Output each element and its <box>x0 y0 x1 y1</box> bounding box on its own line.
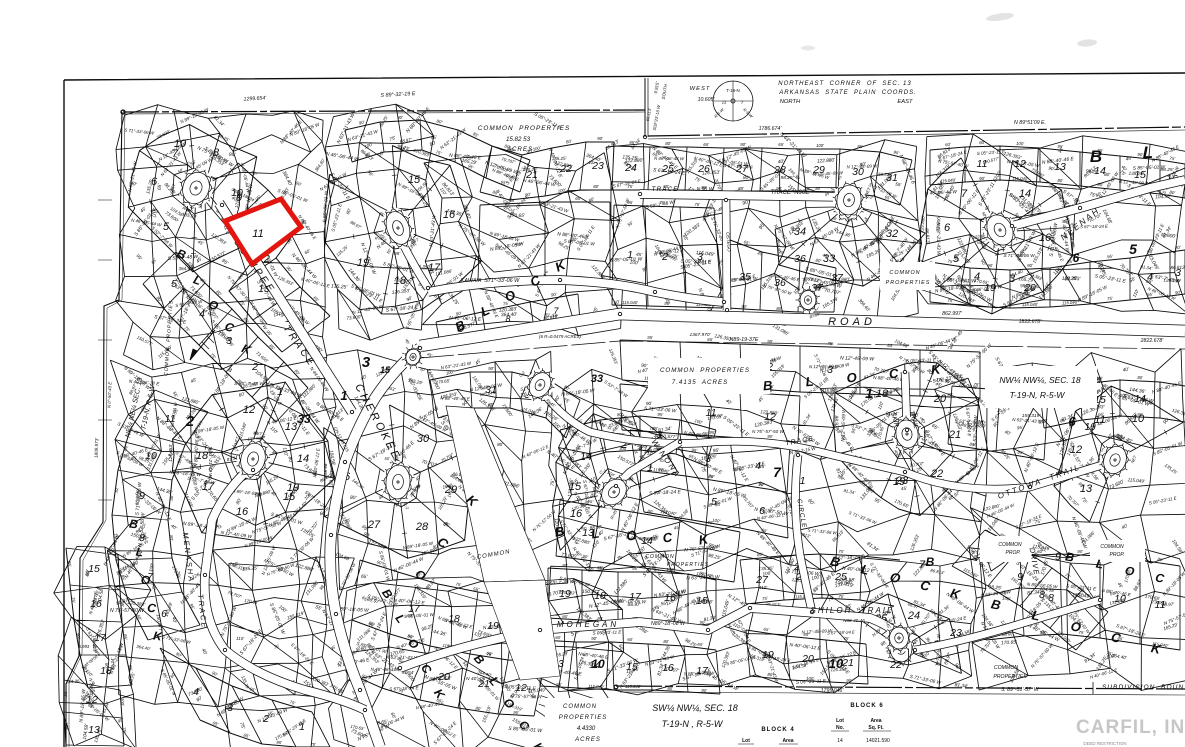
svg-text:N 63°-21'-43 W: N 63°-21'-43 W <box>686 574 720 581</box>
svg-text:65': 65' <box>562 614 568 619</box>
svg-text:60': 60' <box>555 635 561 640</box>
svg-text:65': 65' <box>703 142 709 147</box>
svg-text:100': 100' <box>1002 596 1011 602</box>
svg-text:80': 80' <box>708 474 714 480</box>
svg-text:B: B <box>762 378 773 394</box>
svg-text:80': 80' <box>767 672 773 678</box>
svg-text:15: 15 <box>380 365 391 375</box>
svg-text:85': 85' <box>562 563 568 568</box>
svg-text:80': 80' <box>617 412 623 418</box>
svg-text:90': 90' <box>1027 263 1033 268</box>
svg-text:6: 6 <box>944 222 951 234</box>
svg-text:1809.973': 1809.973' <box>94 438 100 458</box>
svg-text:10: 10 <box>829 656 844 671</box>
svg-text:PROPERTIES: PROPERTIES <box>667 562 709 568</box>
svg-text:95': 95' <box>1098 412 1104 418</box>
svg-text:TRACE N90E: TRACE N90E <box>771 190 811 196</box>
svg-text:N 89°-18'-05 W: N 89°-18'-05 W <box>614 599 647 605</box>
svg-text:80': 80' <box>1137 375 1143 380</box>
svg-text:80': 80' <box>593 184 599 189</box>
svg-text:27: 27 <box>367 519 381 531</box>
svg-text:3: 3 <box>362 354 371 371</box>
svg-text:20: 20 <box>933 393 947 405</box>
svg-text:PROP.: PROP. <box>1006 550 1021 556</box>
svg-text:1367.970': 1367.970' <box>690 332 712 338</box>
svg-text:80': 80' <box>663 639 669 644</box>
svg-text:DEED RESTRICTION: DEED RESTRICTION <box>1083 741 1126 746</box>
svg-text:S 05°-23'-11 E: S 05°-23'-11 E <box>592 629 622 635</box>
svg-text:1: 1 <box>340 388 347 403</box>
svg-text:65': 65' <box>587 499 593 505</box>
svg-text:N89-19-37E: N89-19-37E <box>729 337 758 343</box>
svg-text:75': 75' <box>838 594 844 599</box>
svg-text:795.778': 795.778' <box>93 591 99 608</box>
svg-text:115.040': 115.040' <box>622 300 638 306</box>
svg-text:126.353': 126.353' <box>702 169 722 176</box>
svg-text:7.4135 ACRES: 7.4135 ACRES <box>672 379 728 386</box>
svg-text:98.25': 98.25' <box>1020 283 1032 289</box>
svg-text:16: 16 <box>443 209 456 221</box>
svg-text:80': 80' <box>815 186 821 191</box>
svg-text:95': 95' <box>1137 412 1143 417</box>
svg-text:COMMON: COMMON <box>563 704 597 710</box>
svg-text:NET: NET <box>254 431 263 437</box>
svg-text:N 12°-45'-09 W: N 12°-45'-09 W <box>840 408 847 442</box>
svg-text:95': 95' <box>1077 549 1083 554</box>
svg-text:80': 80' <box>1057 178 1063 184</box>
svg-text:NORTH: NORTH <box>780 99 801 105</box>
svg-text:16: 16 <box>1084 422 1096 433</box>
svg-text:COMMON: COMMON <box>994 665 1018 671</box>
svg-text:PROP.: PROP. <box>1110 552 1125 558</box>
svg-text:55': 55' <box>895 182 902 188</box>
svg-text:NORTHEAST CORNER OF SEC. 13: NORTHEAST CORNER OF SEC. 13 <box>778 81 911 87</box>
svg-text:80': 80' <box>665 141 671 146</box>
svg-text:4.4330: 4.4330 <box>577 726 596 732</box>
svg-text:75': 75' <box>1107 296 1113 302</box>
svg-text:BLOCK 4: BLOCK 4 <box>761 727 794 733</box>
svg-text:N88-40-46: N88-40-46 <box>843 618 865 623</box>
svg-text:COMMON: COMMON <box>645 554 674 560</box>
svg-text:1: 1 <box>865 385 873 401</box>
svg-text:O: O <box>846 370 857 386</box>
svg-text:22: 22 <box>889 659 902 671</box>
svg-text:B: B <box>926 555 935 569</box>
svg-text:COMMON PROPERTIES: COMMON PROPERTIES <box>478 125 570 132</box>
svg-text:28: 28 <box>415 521 429 533</box>
svg-text:30: 30 <box>417 433 430 445</box>
svg-text:Sq. Ft.: Sq. Ft. <box>868 725 884 731</box>
svg-text:ROAD: ROAD <box>828 316 876 328</box>
svg-text:14021.590: 14021.590 <box>866 738 890 744</box>
svg-text:75': 75' <box>1106 651 1113 657</box>
svg-text:3. 89°-51'-57 W: 3. 89°-51'-57 W <box>1001 687 1039 693</box>
svg-text:PROPERTIES: PROPERTIES <box>559 715 608 721</box>
svg-text:1299.654': 1299.654' <box>243 95 267 102</box>
svg-text:PROPERTIES: PROPERTIES <box>886 280 931 286</box>
svg-text:COMMON: COMMON <box>1100 544 1124 550</box>
svg-text:12: 12 <box>243 404 255 416</box>
svg-text:10.605': 10.605' <box>698 97 716 103</box>
svg-text:B: B <box>1090 147 1102 166</box>
svg-text:4: 4 <box>199 308 205 320</box>
svg-text:ARKANSAS STATE PLAIN COORDS: ARKANSAS STATE PLAIN COORDS. <box>778 90 916 96</box>
svg-text:1822.678': 1822.678' <box>1019 319 1043 325</box>
svg-text:10: 10 <box>591 657 605 671</box>
svg-text:1786.674': 1786.674' <box>759 126 783 132</box>
svg-text:45': 45' <box>636 252 643 258</box>
svg-text:6: 6 <box>1068 414 1076 429</box>
svg-text:EAST: EAST <box>897 99 913 105</box>
svg-text:Lot: Lot <box>836 718 844 724</box>
svg-text:11: 11 <box>252 228 263 240</box>
svg-text:75': 75' <box>827 341 833 346</box>
svg-text:T-19-N , R-5-W: T-19-N , R-5-W <box>662 719 724 729</box>
svg-text:14: 14 <box>297 453 309 465</box>
svg-text:80': 80' <box>1169 190 1175 196</box>
svg-text:1795.046': 1795.046' <box>821 688 845 694</box>
svg-text:T-19-N, R-5-W: T-19-N, R-5-W <box>1010 390 1066 400</box>
svg-text:135.25': 135.25' <box>1129 171 1144 177</box>
svg-text:SW¼ NW¼, SEC. 18: SW¼ NW¼, SEC. 18 <box>652 703 738 713</box>
svg-text:65': 65' <box>697 642 703 648</box>
svg-text:95': 95' <box>664 301 670 306</box>
svg-text:5: 5 <box>1129 241 1137 257</box>
svg-text:85': 85' <box>887 390 893 395</box>
svg-text:No.: No. <box>836 725 845 731</box>
svg-text:33: 33 <box>297 412 311 426</box>
svg-text:88.97': 88.97' <box>1162 602 1175 608</box>
svg-text:2822.678': 2822.678' <box>1140 338 1165 344</box>
svg-text:75': 75' <box>838 549 844 554</box>
svg-text:60': 60' <box>627 637 633 642</box>
svg-text:110': 110' <box>236 636 245 642</box>
svg-text:7: 7 <box>919 559 926 571</box>
svg-text:(6 R=0.0479 ACRES): (6 R=0.0479 ACRES) <box>539 334 581 339</box>
svg-text:Area: Area <box>782 738 793 744</box>
svg-text:N 12°-45'-09 W: N 12°-45'-09 W <box>840 355 876 362</box>
svg-text:80': 80' <box>715 502 721 508</box>
svg-text:6.993: 6.993 <box>79 644 90 649</box>
svg-text:2: 2 <box>185 413 195 430</box>
svg-text:L: L <box>805 374 814 390</box>
svg-text:95': 95' <box>276 740 282 745</box>
svg-text:ACRES: ACRES <box>506 146 533 153</box>
svg-text:90': 90' <box>591 636 597 641</box>
svg-text:122.880': 122.880' <box>625 158 645 165</box>
svg-text:CARFIL, INC: CARFIL, INC <box>1076 717 1185 738</box>
svg-text:85': 85' <box>738 186 744 191</box>
svg-text:24: 24 <box>907 610 920 622</box>
svg-text:65': 65' <box>763 627 769 633</box>
svg-text:90': 90' <box>551 292 557 298</box>
svg-text:80': 80' <box>497 442 503 447</box>
svg-text:MOHEGAN: MOHEGAN <box>557 620 619 629</box>
svg-text:85': 85' <box>969 442 975 448</box>
svg-text:16: 16 <box>570 508 583 520</box>
svg-text:WEST: WEST <box>690 86 711 92</box>
svg-text:33: 33 <box>591 373 603 385</box>
svg-text:90': 90' <box>658 467 664 473</box>
svg-text:90': 90' <box>767 434 773 439</box>
svg-text:N 89°51'09 E.: N 89°51'09 E. <box>1014 120 1046 126</box>
svg-text:75': 75' <box>114 487 120 493</box>
svg-text:COMMON PROPERTIES: COMMON PROPERTIES <box>660 367 750 374</box>
svg-text:90': 90' <box>979 176 985 181</box>
svg-text:60': 60' <box>945 142 951 147</box>
svg-text:862.997': 862.997' <box>942 311 963 317</box>
svg-text:65': 65' <box>778 142 784 147</box>
svg-text:SHILOH TRAIL: SHILOH TRAIL <box>811 606 894 615</box>
svg-text:80': 80' <box>979 140 985 145</box>
svg-text:75': 75' <box>694 202 700 207</box>
svg-text:100': 100' <box>816 143 824 148</box>
svg-text:N89°-18'-08 W: N89°-18'-08 W <box>651 621 686 627</box>
svg-text:14: 14 <box>837 738 843 744</box>
svg-text:75': 75' <box>1169 156 1175 162</box>
svg-text:KAWAIA S71°-33'-06 W: KAWAIA S71°-33'-06 W <box>461 278 520 284</box>
svg-text:86.813': 86.813' <box>1170 265 1185 270</box>
svg-text:75': 75' <box>659 200 665 205</box>
svg-text:60': 60' <box>566 139 573 145</box>
svg-text:95': 95' <box>1017 425 1023 431</box>
svg-text:15.82 53: 15.82 53 <box>506 136 531 143</box>
svg-text:7: 7 <box>773 464 782 480</box>
svg-text:75': 75' <box>762 596 768 602</box>
svg-text:95': 95' <box>1107 254 1113 260</box>
svg-text:65': 65' <box>887 343 893 348</box>
svg-text:NW¼ NW¼, SEC. 18: NW¼ NW¼, SEC. 18 <box>999 375 1081 385</box>
svg-text:COMMON: COMMON <box>889 270 920 276</box>
svg-text:90': 90' <box>646 401 652 406</box>
svg-text:50': 50' <box>420 367 426 373</box>
svg-text:O: O <box>625 527 637 543</box>
svg-text:60': 60' <box>486 651 492 657</box>
svg-text:SUBDIVISION BOUN: SUBDIVISION BOUN <box>1102 684 1184 691</box>
svg-text:75': 75' <box>947 259 953 265</box>
svg-text:Area: Area <box>870 718 881 724</box>
svg-text:S 85°-05'-01 W: S 85°-05'-01 W <box>942 277 977 284</box>
svg-text:90': 90' <box>597 136 603 141</box>
svg-text:95': 95' <box>647 335 653 340</box>
svg-text:90': 90' <box>488 366 494 371</box>
svg-text:95': 95' <box>709 430 715 435</box>
svg-text:TRACE: TRACE <box>651 186 678 193</box>
svg-text:N 0°-50'-43 E: N 0°-50'-43 E <box>107 382 113 408</box>
svg-text:PROPERTIES: PROPERTIES <box>993 674 1027 680</box>
svg-text:COMMON: COMMON <box>998 542 1022 548</box>
svg-text:Lot: Lot <box>742 738 750 744</box>
svg-text:BLOCK 6: BLOCK 6 <box>850 703 883 709</box>
svg-text:N 90 W: N 90 W <box>697 187 715 193</box>
svg-text:ACRES: ACRES <box>574 737 601 743</box>
svg-text:104.58': 104.58' <box>839 577 856 584</box>
svg-text:100': 100' <box>1016 141 1024 146</box>
svg-text:19: 19 <box>893 476 905 488</box>
